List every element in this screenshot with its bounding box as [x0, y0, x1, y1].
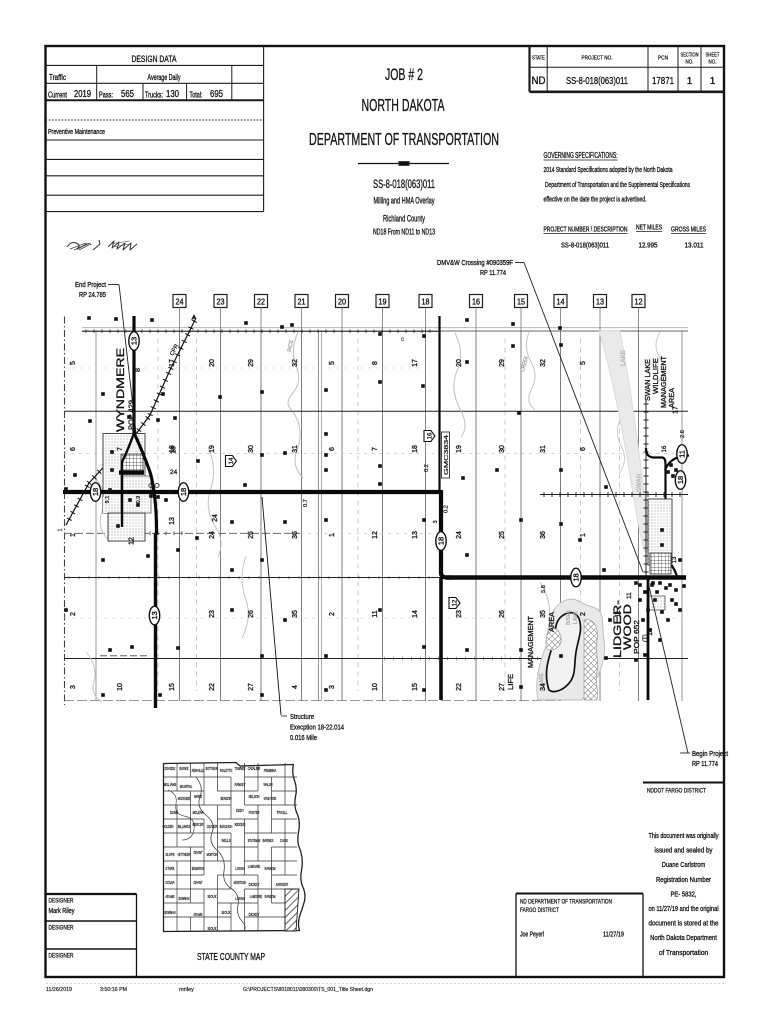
- svg-text:5: 5: [70, 361, 77, 365]
- svg-text:130: 130: [166, 88, 179, 100]
- svg-text:WARD: WARD: [194, 794, 202, 799]
- svg-text:0.016 Mile: 0.016 Mile: [290, 735, 317, 742]
- svg-text:ROLETTE: ROLETTE: [220, 768, 233, 773]
- svg-text:36: 36: [540, 531, 547, 539]
- svg-text:MERCER: MERCER: [193, 822, 204, 827]
- svg-text:5: 5: [580, 361, 587, 365]
- svg-text:LOGAN: LOGAN: [236, 896, 245, 901]
- svg-text:OLIVER: OLIVER: [207, 824, 218, 829]
- svg-text:12: 12: [635, 297, 643, 307]
- svg-text:0.7: 0.7: [303, 499, 309, 507]
- svg-text:DICKEY: DICKEY: [249, 882, 260, 887]
- svg-text:LAKE: LAKE: [573, 611, 579, 624]
- svg-text:18: 18: [422, 297, 430, 307]
- svg-text:BISMARCK: BISMARCK: [192, 866, 205, 871]
- svg-text:NELSON: NELSON: [249, 794, 260, 799]
- svg-text:SARGENT: SARGENT: [276, 882, 289, 887]
- svg-text:GROSS MILES: GROSS MILES: [671, 227, 706, 234]
- svg-text:LIFE: LIFE: [506, 674, 515, 690]
- svg-text:LOGAN: LOGAN: [236, 866, 245, 871]
- svg-text:14: 14: [412, 610, 419, 618]
- svg-text:Pass:: Pass:: [99, 91, 113, 100]
- svg-text:27: 27: [248, 683, 255, 691]
- svg-text:24: 24: [170, 469, 178, 476]
- svg-text:Registration Number: Registration Number: [656, 877, 712, 884]
- svg-text:16: 16: [472, 297, 480, 307]
- svg-text:35: 35: [540, 610, 547, 618]
- svg-text:16: 16: [662, 445, 668, 452]
- svg-text:11/27/19: 11/27/19: [603, 932, 624, 939]
- svg-text:BOWMAN: BOWMAN: [165, 910, 176, 915]
- svg-text:KIDDER: KIDDER: [235, 822, 246, 827]
- svg-text:NO.: NO.: [686, 60, 694, 66]
- svg-text:11: 11: [626, 592, 633, 599]
- svg-text:BOWMAN: BOWMAN: [179, 896, 190, 901]
- svg-text:6: 6: [70, 447, 77, 451]
- svg-text:32: 32: [292, 359, 299, 367]
- svg-text:NO.: NO.: [709, 60, 717, 66]
- svg-text:Total:: Total:: [190, 91, 203, 100]
- svg-text:12: 12: [453, 599, 459, 606]
- svg-text:Milling and HMA Overlay: Milling and HMA Overlay: [374, 196, 435, 206]
- svg-text:15: 15: [517, 297, 525, 307]
- svg-text:CAVALIER: CAVALIER: [248, 766, 261, 771]
- svg-text:GOVERNING SPECIFICATIONS:: GOVERNING SPECIFICATIONS:: [544, 151, 618, 160]
- svg-text:8: 8: [372, 361, 379, 365]
- svg-text:5: 5: [329, 361, 336, 365]
- svg-text:SIOUX: SIOUX: [222, 910, 231, 915]
- svg-text:Execption 18-22.014: Execption 18-22.014: [290, 725, 344, 732]
- svg-text:Traffic: Traffic: [49, 73, 66, 82]
- svg-text:19: 19: [379, 297, 387, 307]
- svg-text:RP 11.774: RP 11.774: [480, 268, 506, 277]
- svg-text:24: 24: [176, 297, 184, 307]
- svg-text:This document was originally: This document was originally: [649, 833, 719, 840]
- svg-text:2.6: 2.6: [680, 430, 686, 438]
- svg-text:12: 12: [372, 531, 379, 539]
- svg-text:DMV&W Crossing #090359F: DMV&W Crossing #090359F: [437, 258, 513, 267]
- svg-text:SS-8-018(063)011: SS-8-018(063)011: [373, 179, 435, 191]
- svg-text:FOSTER: FOSTER: [249, 810, 260, 815]
- svg-text:17: 17: [169, 359, 176, 367]
- svg-text:6: 6: [329, 447, 336, 451]
- svg-text:LAKE: LAKE: [620, 349, 627, 366]
- svg-text:19: 19: [209, 445, 216, 453]
- svg-text:3: 3: [329, 685, 336, 689]
- svg-text:MCLEAN: MCLEAN: [193, 810, 204, 815]
- svg-text:18: 18: [437, 537, 446, 545]
- svg-text:26: 26: [248, 610, 255, 618]
- svg-text:issued and sealed by: issued and sealed by: [655, 848, 713, 855]
- svg-text:24: 24: [209, 531, 216, 539]
- svg-text:Average Daily: Average Daily: [148, 73, 181, 82]
- svg-text:DICKEY: DICKEY: [249, 912, 260, 917]
- svg-text:29: 29: [499, 359, 506, 367]
- svg-text:1: 1: [70, 533, 77, 537]
- svg-text:SIOUX: SIOUX: [208, 926, 217, 931]
- svg-text:695: 695: [210, 88, 223, 100]
- svg-text:1: 1: [687, 76, 693, 87]
- svg-text:LAMOURE: LAMOURE: [248, 864, 261, 869]
- svg-text:MORTON: MORTON: [207, 852, 218, 857]
- svg-text:6: 6: [580, 447, 587, 451]
- svg-text:BURKE: BURKE: [180, 766, 189, 771]
- svg-text:35: 35: [292, 610, 299, 618]
- svg-text:NDDOT FARGO DISTRICT: NDDOT FARGO DISTRICT: [647, 788, 706, 795]
- svg-text:18: 18: [171, 446, 178, 454]
- svg-text:25: 25: [248, 531, 255, 539]
- svg-text:GOLVA: GOLVA: [166, 880, 175, 885]
- svg-text:21: 21: [298, 297, 306, 307]
- svg-text:WYNDMERE: WYNDMERE: [115, 348, 127, 432]
- svg-text:PROJECT NO.: PROJECT NO.: [582, 56, 613, 62]
- svg-text:RP 11.774: RP 11.774: [692, 759, 718, 768]
- svg-text:10: 10: [117, 683, 124, 691]
- svg-text:Current: Current: [48, 91, 68, 100]
- svg-text:MOUNTRAIL: MOUNTRAIL: [180, 784, 193, 789]
- svg-text:20: 20: [209, 359, 216, 367]
- svg-text:MCKENZIE: MCKENZIE: [178, 796, 191, 801]
- svg-text:Begin Project: Begin Project: [692, 749, 729, 758]
- svg-text:7: 7: [372, 447, 379, 451]
- svg-text:RANSOM: RANSOM: [265, 894, 276, 899]
- svg-text:12: 12: [129, 537, 136, 545]
- svg-text:ND18 From ND11 to ND13: ND18 From ND11 to ND13: [373, 228, 435, 237]
- svg-text:3: 3: [70, 685, 77, 689]
- svg-text:1: 1: [580, 533, 587, 537]
- svg-text:23: 23: [209, 610, 216, 618]
- svg-text:G:\PROJECTS\8018011\080300\TS_: G:\PROJECTS\8018011\080300\TS_001_Title …: [243, 987, 373, 993]
- svg-text:ND DEPARTMENT OF TRANSPORTATIO: ND DEPARTMENT OF TRANSPORTATION: [520, 899, 612, 906]
- svg-text:SWAN: SWAN: [636, 474, 643, 492]
- svg-text:SECTION: SECTION: [681, 53, 699, 59]
- svg-text:Mark Riley: Mark Riley: [49, 908, 75, 915]
- svg-text:TRAILL: TRAILL: [277, 810, 288, 815]
- svg-text:Richland County: Richland County: [383, 214, 425, 224]
- svg-text:22: 22: [257, 297, 265, 307]
- svg-text:Joe Peyerl: Joe Peyerl: [520, 932, 544, 939]
- svg-text:ADAMS: ADAMS: [166, 894, 175, 899]
- svg-text:15: 15: [169, 683, 176, 691]
- svg-text:2: 2: [329, 612, 336, 616]
- svg-text:BARNES: BARNES: [263, 838, 274, 843]
- svg-text:11: 11: [678, 450, 687, 458]
- svg-text:32: 32: [540, 359, 547, 367]
- svg-text:12.995: 12.995: [639, 241, 658, 250]
- svg-text:0.2: 0.2: [424, 464, 430, 472]
- svg-text:2: 2: [580, 612, 587, 616]
- svg-text:of Transportation: of Transportation: [659, 950, 708, 957]
- svg-text:19: 19: [456, 445, 463, 453]
- svg-text:BENSON: BENSON: [221, 796, 232, 801]
- svg-text:1: 1: [710, 76, 716, 87]
- svg-text:13.011: 13.011: [685, 241, 704, 250]
- svg-text:20: 20: [456, 359, 463, 367]
- svg-text:565: 565: [121, 88, 134, 100]
- svg-text:13: 13: [412, 531, 419, 539]
- svg-text:34: 34: [540, 683, 547, 691]
- svg-text:FARGO DISTRICT: FARGO DISTRICT: [520, 907, 559, 914]
- svg-text:7: 7: [117, 447, 124, 451]
- svg-text:Trucks:: Trucks:: [145, 91, 163, 100]
- svg-text:SIOUX: SIOUX: [208, 894, 217, 899]
- svg-text:1: 1: [329, 533, 336, 537]
- svg-text:13: 13: [672, 556, 678, 563]
- svg-text:STARK: STARK: [166, 866, 175, 871]
- svg-text:ND: ND: [532, 75, 546, 87]
- svg-text:document is stored at the: document is stored at the: [649, 921, 719, 928]
- svg-text:18: 18: [179, 488, 188, 496]
- svg-text:31: 31: [292, 445, 299, 453]
- svg-text:GRANT: GRANT: [194, 850, 203, 855]
- svg-text:TOWNER: TOWNER: [235, 766, 246, 771]
- svg-text:Department of Transportation a: Department of Transportation and the Sup…: [545, 182, 690, 189]
- svg-text:WALSH: WALSH: [264, 782, 273, 787]
- svg-text:DESIGN DATA: DESIGN DATA: [132, 54, 177, 65]
- svg-text:BOTTINEAU: BOTTINEAU: [206, 766, 219, 771]
- svg-text:NORTH DAKOTA: NORTH DAKOTA: [362, 95, 445, 115]
- svg-text:DESIGNER: DESIGNER: [49, 925, 74, 932]
- svg-text:AREA: AREA: [667, 388, 676, 408]
- svg-text:effective on the date the proj: effective on the date the project is adv…: [544, 197, 647, 204]
- svg-text:PCN: PCN: [658, 56, 668, 62]
- svg-text:WELLS: WELLS: [222, 838, 231, 843]
- svg-text:4: 4: [292, 685, 299, 689]
- svg-text:NET MILES: NET MILES: [636, 225, 662, 232]
- svg-text:24: 24: [212, 514, 219, 522]
- svg-text:24: 24: [456, 531, 463, 539]
- svg-text:18: 18: [412, 445, 419, 453]
- svg-text:RP 24.785: RP 24.785: [79, 290, 106, 299]
- svg-text:mriley: mriley: [179, 987, 194, 993]
- svg-text:JOB # 2: JOB # 2: [385, 66, 423, 84]
- svg-text:SS-8-018(063)011: SS-8-018(063)011: [561, 241, 609, 250]
- svg-text:18: 18: [572, 573, 581, 581]
- svg-text:GOLDEN: GOLDEN: [163, 824, 174, 829]
- svg-text:SHEET: SHEET: [706, 53, 720, 59]
- svg-text:LAMOURE: LAMOURE: [250, 894, 263, 899]
- svg-text:30: 30: [499, 445, 506, 453]
- svg-text:ADAMS: ADAMS: [194, 912, 203, 917]
- svg-text:3:50:16 PM: 3:50:16 PM: [100, 987, 127, 993]
- svg-text:11: 11: [615, 610, 622, 617]
- svg-text:c: c: [401, 337, 404, 343]
- svg-text:RAMSEY: RAMSEY: [235, 782, 246, 787]
- svg-text:STUTSMAN: STUTSMAN: [248, 838, 261, 843]
- svg-text:17871: 17871: [652, 76, 674, 87]
- svg-text:22: 22: [209, 683, 216, 691]
- svg-text:13: 13: [596, 297, 604, 307]
- svg-text:14: 14: [557, 297, 565, 307]
- svg-text:Preventive Maintenance: Preventive Maintenance: [48, 127, 105, 136]
- svg-text:13: 13: [169, 517, 176, 525]
- svg-text:MANAGEMENT: MANAGEMENT: [526, 616, 535, 668]
- svg-text:SLOPE: SLOPE: [166, 852, 175, 857]
- svg-text:15: 15: [412, 683, 419, 691]
- svg-text:11: 11: [372, 610, 379, 617]
- svg-text:17: 17: [412, 359, 419, 367]
- svg-text:36: 36: [292, 531, 299, 539]
- svg-text:AREA: AREA: [547, 612, 556, 632]
- svg-text:DEPARTMENT OF TRANSPORTATION: DEPARTMENT OF TRANSPORTATION: [309, 129, 499, 149]
- svg-text:31: 31: [540, 445, 547, 453]
- svg-text:9.1: 9.1: [105, 496, 111, 504]
- svg-text:MCINTOSH: MCINTOSH: [234, 880, 247, 885]
- svg-text:STATE COUNTY MAP: STATE COUNTY MAP: [197, 951, 265, 963]
- svg-text:30: 30: [248, 445, 255, 453]
- svg-text:5.8: 5.8: [541, 585, 547, 593]
- svg-text:DESIGNER: DESIGNER: [49, 953, 74, 960]
- svg-text:RENVILLE: RENVILLE: [192, 768, 205, 773]
- svg-text:18: 18: [676, 476, 685, 484]
- svg-text:EDDY: EDDY: [236, 808, 244, 813]
- svg-text:20: 20: [338, 297, 346, 307]
- svg-text:End Project: End Project: [75, 280, 107, 289]
- svg-text:29: 29: [248, 359, 255, 367]
- svg-text:on 11/27/19 and the original: on 11/27/19 and the original: [649, 906, 719, 913]
- svg-text:23: 23: [456, 610, 463, 618]
- svg-text:22: 22: [456, 683, 463, 691]
- svg-text:PROJECT NUMBER \ DESCRIPTION: PROJECT NUMBER \ DESCRIPTION: [544, 227, 628, 234]
- svg-text:BISEK: BISEK: [566, 610, 572, 625]
- svg-text:16: 16: [428, 432, 434, 439]
- svg-text:13: 13: [130, 337, 139, 345]
- svg-text:CASS: CASS: [280, 838, 288, 843]
- svg-text:North Dakota Department: North Dakota Department: [650, 935, 717, 942]
- svg-text:23: 23: [217, 297, 225, 307]
- svg-text:GMC3834: GMC3834: [444, 435, 450, 475]
- svg-text:GRANT: GRANT: [194, 880, 203, 885]
- svg-text:GRAND FORKS: GRAND FORKS: [264, 796, 277, 801]
- svg-text:BILLINGS: BILLINGS: [178, 824, 191, 829]
- svg-text:PEMBINA: PEMBINA: [264, 768, 277, 773]
- svg-text:14: 14: [229, 457, 235, 464]
- svg-text:3: 3: [433, 520, 439, 523]
- svg-text:Structure: Structure: [290, 714, 314, 721]
- svg-text:BURLEIGH: BURLEIGH: [220, 824, 233, 829]
- svg-text:13: 13: [150, 611, 159, 619]
- svg-text:PE- 5832,: PE- 5832,: [670, 891, 696, 898]
- svg-text:Duane Carlstrom: Duane Carlstrom: [662, 862, 706, 869]
- svg-text:2014 Standard Specifications a: 2014 Standard Specifications adopted by …: [544, 167, 673, 174]
- svg-text:STATE: STATE: [532, 56, 545, 62]
- svg-text:27: 27: [499, 683, 506, 691]
- svg-text:2: 2: [70, 612, 77, 616]
- svg-text:POP 652: POP 652: [632, 620, 641, 654]
- svg-text:25: 25: [499, 531, 506, 539]
- svg-text:18: 18: [91, 488, 100, 496]
- svg-text:8: 8: [135, 368, 142, 372]
- svg-text:SS-8-018(063)011: SS-8-018(063)011: [566, 76, 628, 87]
- svg-text:RANSOM: RANSOM: [265, 866, 276, 871]
- svg-text:11/26/2019: 11/26/2019: [46, 987, 72, 993]
- svg-text:0.2: 0.2: [444, 505, 450, 513]
- svg-text:DIVIDE: DIVIDE: [165, 766, 176, 771]
- svg-text:WILLIAMS: WILLIAMS: [164, 782, 177, 787]
- svg-text:17: 17: [673, 406, 680, 414]
- svg-text:HETTINGER: HETTINGER: [178, 852, 191, 857]
- svg-text:DESIGNER: DESIGNER: [49, 898, 74, 905]
- svg-text:26: 26: [499, 610, 506, 618]
- svg-text:DUNN: DUNN: [170, 810, 178, 815]
- svg-text:10: 10: [372, 683, 379, 691]
- svg-text:2019: 2019: [74, 88, 91, 100]
- svg-text:0.9: 0.9: [136, 496, 142, 504]
